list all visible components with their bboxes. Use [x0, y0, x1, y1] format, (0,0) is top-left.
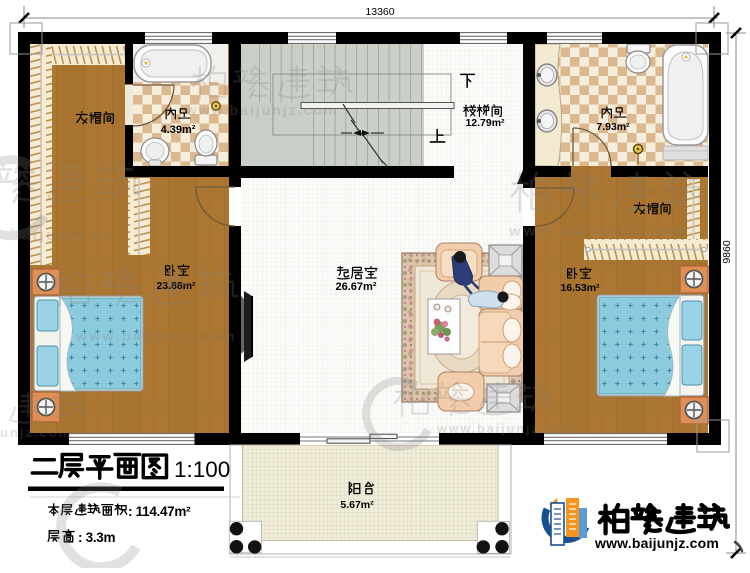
svg-text:13360: 13360 [365, 6, 394, 18]
svg-text:16.53m²: 16.53m² [560, 282, 600, 294]
svg-text:7.93m²: 7.93m² [596, 121, 630, 133]
svg-text:: 114.47m²: : 114.47m² [128, 504, 191, 519]
svg-text:4.39m²: 4.39m² [161, 124, 196, 136]
svg-text:www.baijunjz.com: www.baijunjz.com [75, 328, 237, 344]
svg-text:unjz.com: unjz.com [0, 425, 72, 440]
svg-text:12.79m²: 12.79m² [465, 117, 505, 129]
svg-text:www.baijunjz.com: www.baijunjz.com [185, 102, 339, 118]
svg-text:www.baijunjz.com: www.baijunjz.com [436, 422, 577, 436]
svg-text:5.67m²: 5.67m² [340, 499, 374, 511]
svg-text:: 3.3m: : 3.3m [78, 530, 116, 545]
svg-text:www.baijunjz.com: www.baijunjz.com [594, 535, 719, 551]
svg-text:26.67m²: 26.67m² [336, 281, 377, 293]
svg-text:9860: 9860 [721, 240, 733, 264]
svg-text:www.baijunjz.com: www.baijunjz.com [508, 223, 686, 240]
svg-text:1:100: 1:100 [174, 457, 230, 482]
